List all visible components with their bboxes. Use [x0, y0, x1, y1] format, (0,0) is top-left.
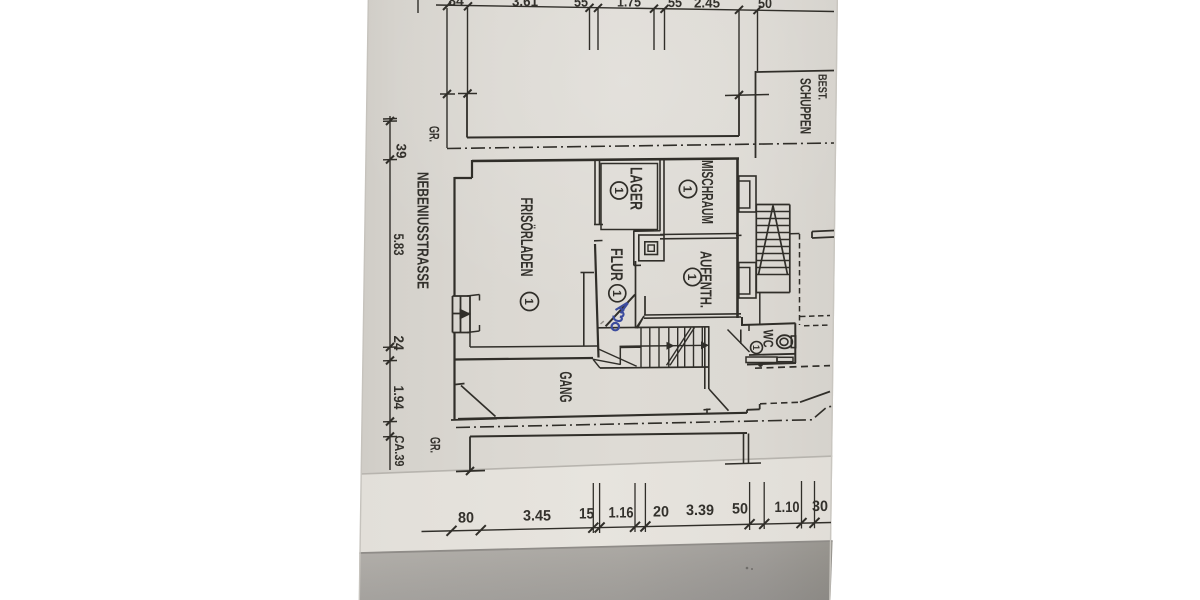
- svg-text:NEBENIUSSTRASSE: NEBENIUSSTRASSE: [414, 172, 431, 289]
- svg-text:FRISÖRLADEN: FRISÖRLADEN: [517, 198, 536, 277]
- svg-text:3.61: 3.61: [512, 0, 538, 9]
- svg-text:FLUR: FLUR: [607, 248, 626, 281]
- svg-text:80: 80: [458, 510, 474, 527]
- svg-text:GR.: GR.: [428, 437, 444, 453]
- svg-text:2.45: 2.45: [694, 0, 720, 10]
- svg-text:SCHUPPEN: SCHUPPEN: [797, 78, 814, 134]
- svg-text:55: 55: [574, 0, 588, 9]
- svg-text:1.94: 1.94: [391, 386, 407, 410]
- svg-text:50: 50: [758, 0, 772, 11]
- svg-text:1: 1: [750, 345, 761, 351]
- svg-text:1: 1: [610, 290, 624, 297]
- svg-text:MISCHRAUM: MISCHRAUM: [698, 160, 715, 224]
- svg-text:GR.: GR.: [427, 126, 443, 142]
- svg-text:39: 39: [394, 144, 410, 159]
- svg-text:3.39: 3.39: [686, 502, 714, 519]
- svg-text:BEST.: BEST.: [816, 74, 830, 100]
- svg-text:GANG: GANG: [556, 372, 575, 403]
- svg-text:30: 30: [812, 498, 828, 515]
- svg-text:20: 20: [653, 504, 669, 521]
- svg-text:5.83: 5.83: [391, 234, 407, 256]
- svg-text:1: 1: [685, 274, 699, 281]
- svg-text:84: 84: [448, 0, 464, 9]
- svg-text:1: 1: [681, 186, 695, 193]
- svg-text:50: 50: [732, 501, 748, 518]
- svg-text:24: 24: [391, 336, 407, 351]
- svg-text:1: 1: [522, 298, 536, 305]
- svg-text:CA.39: CA.39: [392, 436, 407, 467]
- svg-text:15: 15: [579, 506, 594, 523]
- svg-text:1: 1: [612, 187, 626, 194]
- svg-text:3.45: 3.45: [523, 508, 551, 525]
- svg-text:1.16: 1.16: [609, 505, 634, 522]
- svg-text:LAGER: LAGER: [627, 167, 646, 210]
- svg-text:1.75: 1.75: [617, 0, 641, 10]
- svg-text:WC: WC: [761, 330, 777, 348]
- svg-text:55: 55: [668, 0, 682, 10]
- svg-text:1.10: 1.10: [775, 499, 800, 516]
